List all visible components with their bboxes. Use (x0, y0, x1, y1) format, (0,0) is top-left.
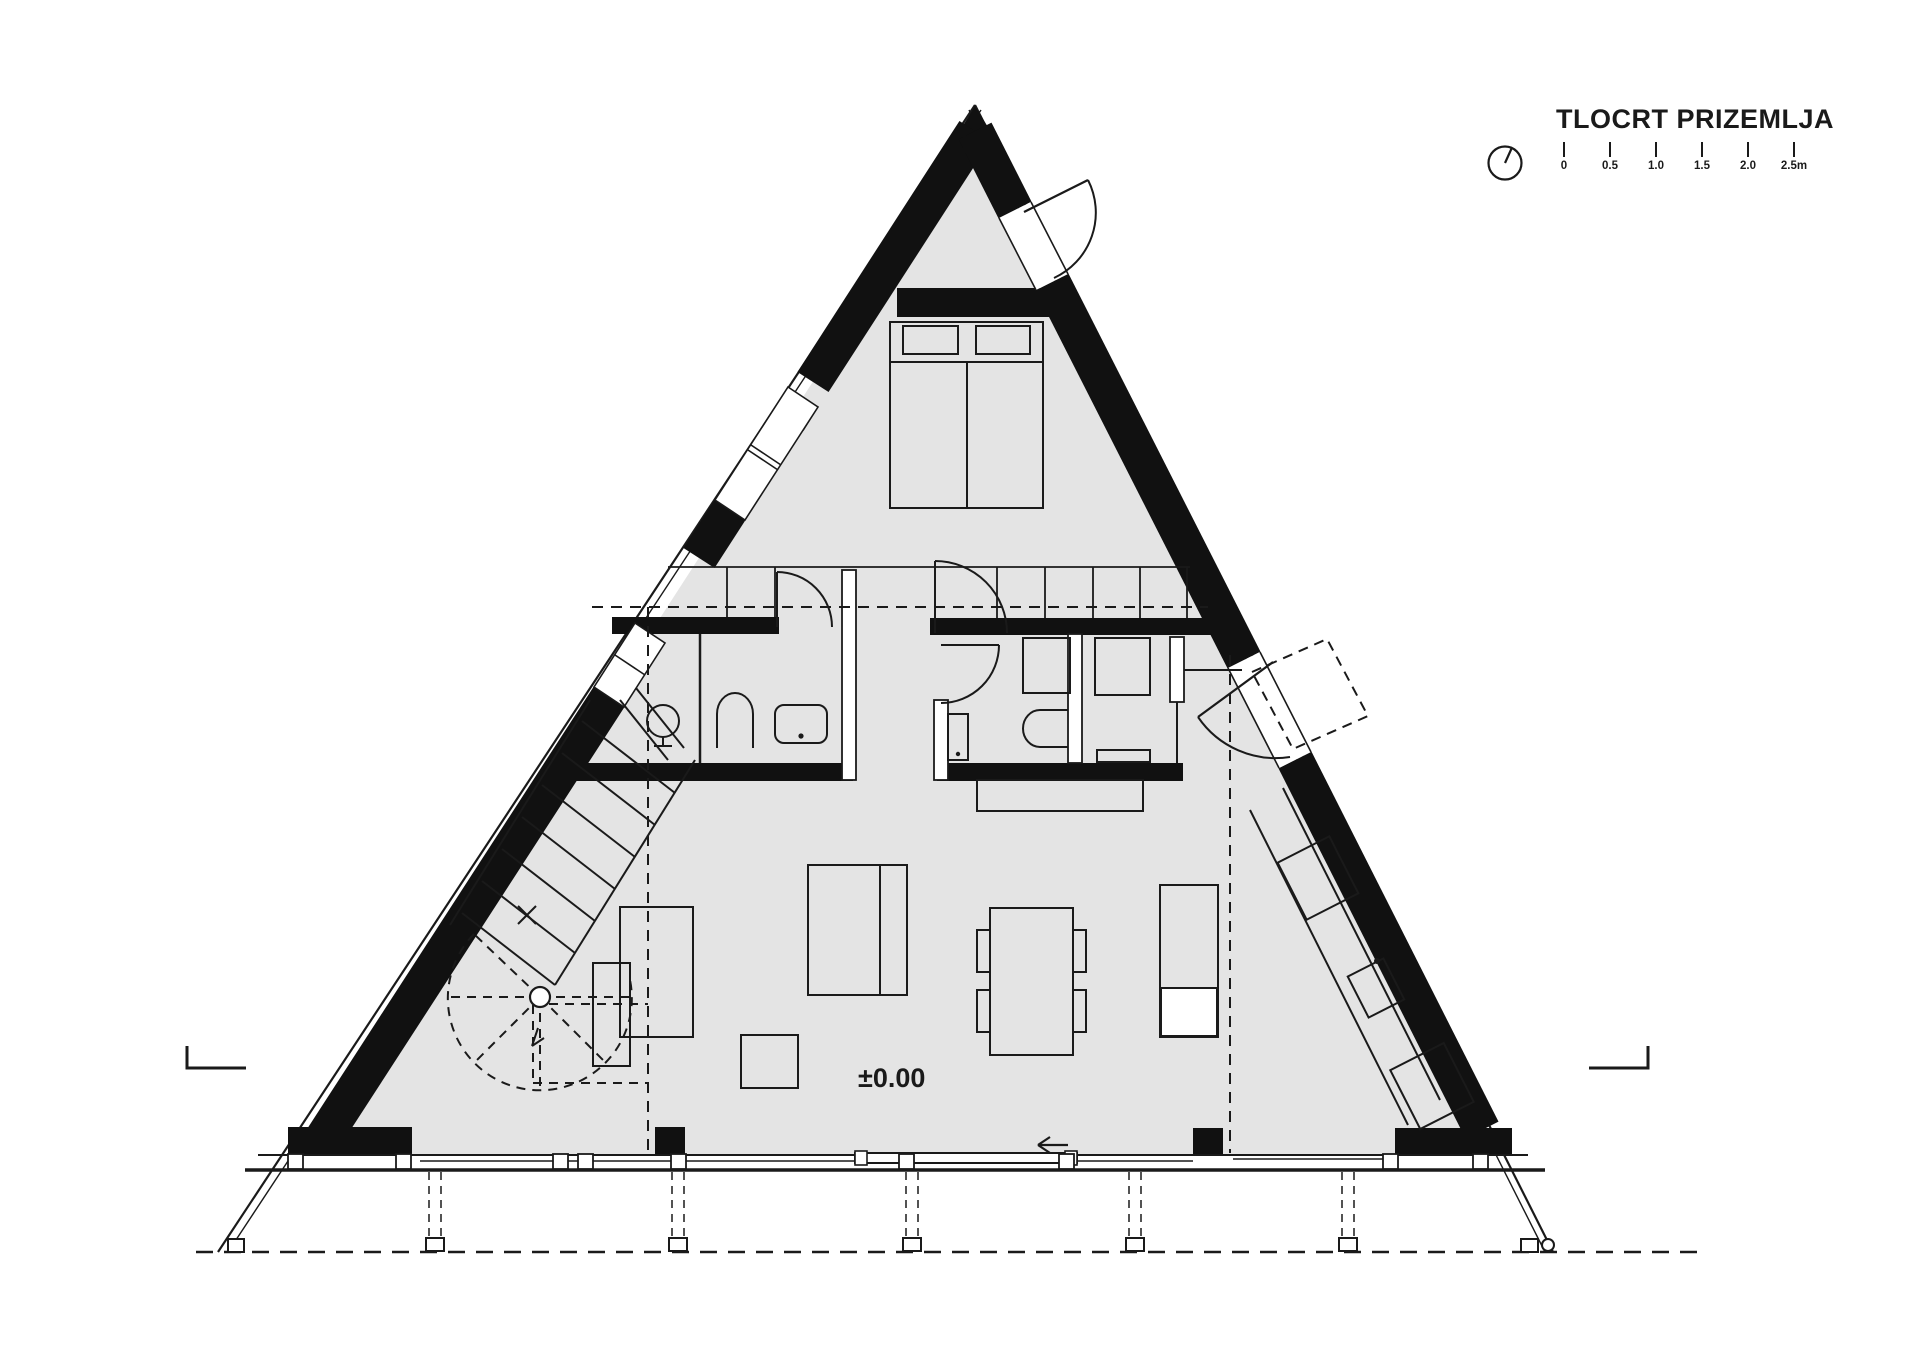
scale-tick (1609, 142, 1611, 157)
scale-label: 0.5 (1588, 160, 1632, 172)
elevation-label: ±0.00 (858, 1063, 925, 1094)
north-indicator-icon (1489, 147, 1522, 180)
floor-plan-sheet: TLOCRT PRIZEMLJA 0 0.5 1.0 1.5 2.0 2.5m … (0, 0, 1920, 1358)
scale-label: 2.5m (1772, 160, 1816, 172)
scale-label: 1.5 (1680, 160, 1724, 172)
scale-label: 1.0 (1634, 160, 1678, 172)
drawing-title: TLOCRT PRIZEMLJA (1556, 104, 1834, 135)
floor-plan-drawing (0, 0, 1920, 1358)
column-footings (228, 1238, 1554, 1252)
scale-label: 2.0 (1726, 160, 1770, 172)
scale-tick (1747, 142, 1749, 157)
sliding-door-panel (855, 1153, 1077, 1163)
floor-slab (318, 131, 1500, 1155)
terrace-structure (196, 1172, 1700, 1252)
scale-tick (1793, 142, 1795, 157)
scale-tick (1655, 142, 1657, 157)
scale-tick (1563, 142, 1565, 157)
scale-tick (1701, 142, 1703, 157)
scale-label: 0 (1542, 160, 1586, 172)
